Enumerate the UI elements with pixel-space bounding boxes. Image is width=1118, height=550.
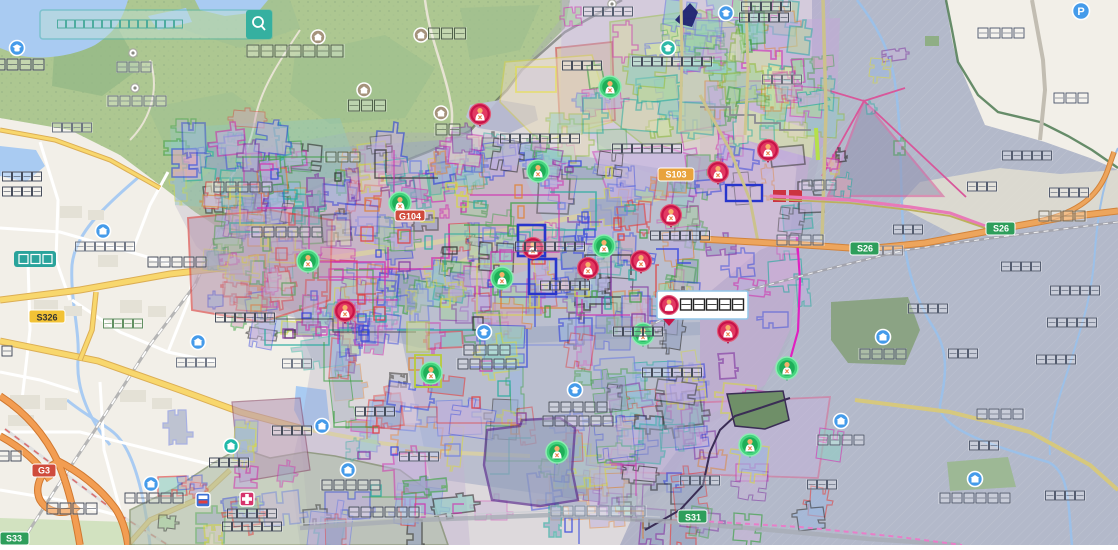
svg-text:S326: S326 [36, 313, 57, 323]
svg-text:S26: S26 [857, 244, 873, 254]
svg-text:S103: S103 [665, 170, 686, 180]
svg-text:G104: G104 [399, 212, 421, 222]
svg-text:S33: S33 [6, 534, 22, 544]
svg-text:S26: S26 [993, 224, 1009, 234]
svg-text:P: P [1077, 6, 1084, 18]
svg-text:G3: G3 [38, 466, 50, 476]
svg-text:S31: S31 [685, 513, 701, 523]
